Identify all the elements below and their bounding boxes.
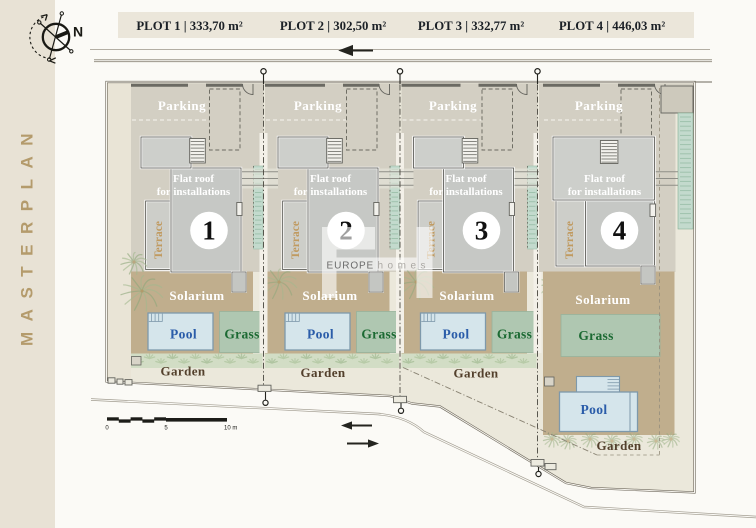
svg-text:homes: homes: [378, 261, 431, 272]
svg-text:Flat roof: Flat roof: [584, 173, 625, 185]
svg-text:Parking: Parking: [294, 98, 342, 113]
svg-text:Terrace: Terrace: [290, 221, 302, 259]
svg-text:3: 3: [475, 216, 489, 246]
svg-text:PLOT 4 | 446,03 m²: PLOT 4 | 446,03 m²: [559, 19, 665, 33]
svg-text:1: 1: [202, 216, 216, 246]
svg-text:for installations: for installations: [429, 186, 503, 198]
svg-text:Parking: Parking: [429, 98, 477, 113]
svg-text:Pool: Pool: [170, 327, 197, 342]
svg-text:Solarium: Solarium: [169, 288, 224, 303]
svg-text:for installations: for installations: [294, 186, 368, 198]
svg-text:Solarium: Solarium: [575, 292, 630, 307]
svg-text:Garden: Garden: [596, 438, 641, 453]
svg-text:PLOT 1 | 333,70 m²: PLOT 1 | 333,70 m²: [136, 19, 242, 33]
svg-text:N: N: [73, 24, 83, 40]
svg-text:Pool: Pool: [442, 327, 469, 342]
svg-text:Grass: Grass: [224, 327, 259, 342]
svg-text:Garden: Garden: [300, 365, 345, 380]
svg-text:Flat roof: Flat roof: [445, 173, 486, 185]
svg-text:10 m: 10 m: [224, 426, 237, 432]
svg-text:Terrace: Terrace: [153, 221, 165, 259]
svg-text:PLOT 3 | 332,77 m²: PLOT 3 | 332,77 m²: [418, 19, 524, 33]
svg-text:for installations: for installations: [157, 186, 231, 198]
svg-text:Garden: Garden: [453, 366, 498, 381]
svg-text:Grass: Grass: [497, 327, 532, 342]
svg-text:Pool: Pool: [580, 402, 607, 417]
svg-text:Flat roof: Flat roof: [173, 173, 214, 185]
svg-text:Solarium: Solarium: [439, 288, 494, 303]
svg-text:Flat roof: Flat roof: [310, 173, 351, 185]
svg-text:PLOT 2 | 302,50 m²: PLOT 2 | 302,50 m²: [280, 19, 386, 33]
svg-text:MASTERPLAN: MASTERPLAN: [18, 123, 37, 346]
svg-text:for installations: for installations: [568, 186, 642, 198]
svg-text:Pool: Pool: [307, 327, 334, 342]
svg-text:Grass: Grass: [361, 327, 396, 342]
svg-text:4: 4: [613, 216, 627, 246]
svg-text:Parking: Parking: [158, 98, 206, 113]
svg-text:Terrace: Terrace: [564, 221, 576, 259]
svg-text:EUROPE: EUROPE: [327, 261, 375, 272]
svg-text:Grass: Grass: [578, 328, 613, 343]
svg-text:Parking: Parking: [575, 98, 623, 113]
svg-text:Garden: Garden: [160, 364, 205, 379]
